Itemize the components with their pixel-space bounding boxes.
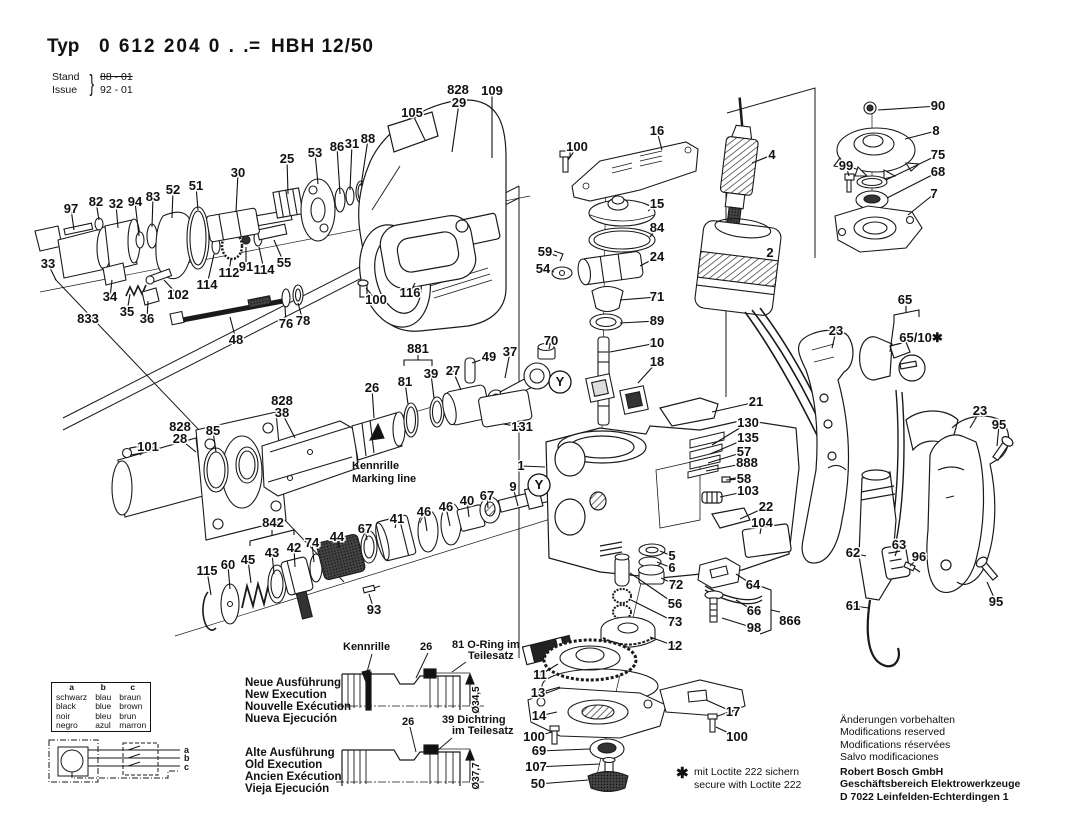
part-label-37: 37 [503,344,517,359]
execution-name: New Execution [245,689,351,701]
part-label-63: 63 [892,537,906,552]
part-label-55: 55 [277,255,291,270]
part-label-56: 56 [668,596,682,611]
ring-retainer [236,447,258,483]
kennrille-note-line: Kennrille [352,460,416,473]
part-label-65: 65 [898,292,912,307]
nut-90 [864,102,876,114]
washer-76 [282,289,290,307]
part-label-833: 833 [77,311,99,326]
part-label-60: 60 [221,557,235,572]
part-label-6: 6 [668,560,675,575]
y-marker-label-0: Y [556,374,565,389]
part-label-18: 18 [650,354,664,369]
o-ring-85 [204,448,228,492]
snap-ring-115 [203,592,216,630]
dichtring-39-mark [424,745,438,754]
stator-2 [694,215,783,317]
spindle-flange-828-28 [112,412,286,540]
wiring-terminal-c: c [184,762,189,772]
part-label-83: 83 [146,189,160,204]
part-label-66: 66 [747,603,761,618]
execution-name: Nouvelle Exécution [245,701,351,713]
part-label-135: 135 [737,430,759,445]
part-label-46: 46 [417,504,431,519]
part-label-102: 102 [167,287,189,302]
color-cell: azul [91,721,115,731]
loctite-star-icon: ✱ [676,764,689,782]
part-label-95: 95 [992,417,1006,432]
part-label-98: 98 [747,620,761,635]
execution-name: Nueva Ejecución [245,713,351,725]
pin-55 [257,224,286,240]
part-label-114: 114 [197,277,219,292]
part-label-84: 84 [650,220,665,235]
part-label-89: 89 [650,313,664,328]
pin-49 [465,358,475,383]
loctite-line: mit Loctite 222 sichern [694,766,801,779]
washer-94 [136,232,144,248]
execution-name: Ancien Exécution [245,771,342,783]
part-label-64: 64 [746,577,761,592]
screw-102 [146,269,172,284]
cap-50 [588,772,628,792]
bit-18a [586,374,614,402]
part-label-44: 44 [330,529,345,544]
spindle-assembly [35,179,366,325]
part-label-11: 11 [533,667,547,682]
part-label-23: 23 [829,323,843,338]
notice-line: Salvo modificaciones [840,751,955,763]
screw-93 [363,585,380,593]
kennrille-groove [366,672,371,710]
part-label-100: 100 [365,292,387,307]
part-label-42: 42 [287,540,301,555]
new-execution-names: Neue AusführungNew ExecutionNouvelle Exé… [245,677,351,725]
part-label-39: 39 [424,366,438,381]
color-cell: negro [52,721,92,731]
part-label-65/10✱: 65/10✱ [899,330,943,345]
sleeve-36 [142,288,159,305]
part-label-114: 114 [254,262,276,277]
leader-line-50 [538,780,588,784]
part-label-74: 74 [305,535,320,550]
part-label-8: 8 [932,123,939,138]
ring-89 [590,314,622,330]
part-label-107: 107 [525,759,547,774]
switch-box [123,743,158,775]
part-label-62: 62 [846,545,860,560]
part-label-85: 85 [206,423,220,438]
handle-shell-23-left [799,330,853,563]
part-label-43: 43 [265,545,279,560]
part-label-31: 31 [345,136,359,151]
part-label-82: 82 [89,194,103,209]
part-label-13: 13 [531,685,545,700]
grip-62 [859,470,896,600]
part-label-88: 88 [361,131,375,146]
washer-54 [552,267,572,279]
o-ring-84 [589,228,655,252]
part-label-90: 90 [931,98,945,113]
part-label-91: 91 [239,259,253,274]
main-handle [906,411,984,592]
part-label-116: 116 [400,285,421,300]
disc-15 [589,196,655,226]
part-label-45: 45 [241,552,255,567]
part-label-29: 29 [452,95,466,110]
part-label-95: 95 [989,594,1003,609]
color-row-3: negroazulmarron [52,721,151,731]
bearing-69 [590,739,624,759]
company-line: Geschäftsbereich Elektrowerkzeuge [840,778,1020,790]
part-label-81: 81 [398,374,412,389]
part-label-12: 12 [668,638,682,653]
callout-kennrille: Kennrille [343,641,390,653]
part-label-103: 103 [737,483,759,498]
part-label-842: 842 [262,515,284,530]
part-label-130: 130 [737,415,759,430]
part-label-131: 131 [511,419,533,434]
leader-lines [48,91,999,784]
parts-diagram-page: Typ 0 612 204 0 . . = HBH 12/50 Stand Is… [0,0,1068,829]
execution-name: Old Execution [245,759,342,771]
washer-5 [639,544,665,556]
screw-98 [705,591,723,622]
part-label-100: 100 [566,139,588,154]
pin-56 [615,554,629,586]
part-label-38: 38 [275,405,289,420]
part-label-35: 35 [120,304,134,319]
screw-95-top [990,435,1014,462]
part-label-33: 33 [41,256,55,271]
part-label-24: 24 [650,249,665,264]
notice-line: Änderungen vorbehalten [840,714,955,726]
part-label-14: 14 [532,708,547,723]
part-label-59: 59 [538,244,552,259]
armature-4 [716,97,763,228]
screw-95-bottom [974,555,999,582]
leader-line-8 [905,131,936,139]
fan-24 [577,251,644,286]
flange-plate-7 [835,206,922,252]
part-label-78: 78 [296,313,310,328]
cover-14 [528,688,666,738]
part-label-67: 67 [480,488,494,503]
y-marker-label-1: Y [535,477,544,492]
callout-81b: Teilesatz [468,650,514,662]
part-label-17: 17 [726,704,740,719]
part-label-36: 36 [140,311,154,326]
part-label-27: 27 [446,363,460,378]
part-label-28: 28 [173,431,187,446]
pin-107 [603,758,615,773]
part-label-109: 109 [481,83,503,98]
bearing-plate-assembly [834,102,922,252]
cone-71 [592,287,623,312]
part-label-881: 881 [407,341,429,356]
part-label-112: 112 [219,265,240,280]
part-label-73: 73 [668,614,682,629]
ring-75 [857,176,887,188]
dia-old: Ø37,7 [471,762,482,790]
part-label-72: 72 [669,577,683,592]
company-address: Robert Bosch GmbHGeschäftsbereich Elektr… [840,766,1020,803]
dia-new: Ø34,5 [471,686,482,714]
part-label-61: 61 [846,598,860,613]
part-label-70: 70 [544,333,558,348]
part-label-48: 48 [229,332,243,347]
part-label-46: 46 [439,499,453,514]
part-label-23: 23 [973,403,987,418]
wiring-terminal-labels: abc [184,745,190,772]
callout-26-old: 26 [402,716,414,728]
part-label-50: 50 [531,776,545,791]
bit-18b [620,386,648,414]
notice-line: Modifications réservées [840,739,955,751]
leader-line-86 [337,147,340,194]
leader-line-90 [878,106,938,110]
part-label-100: 100 [726,729,748,744]
part-label-67: 67 [358,521,372,536]
part-label-40: 40 [460,493,474,508]
loctite-note: mit Loctite 222 sichernsecure with Locti… [694,766,801,791]
part-label-93: 93 [367,602,381,617]
part-label-866: 866 [779,613,801,628]
callout-26-new: 26 [420,641,432,653]
part-label-68: 68 [931,164,945,179]
motor-symbol [61,750,83,772]
part-label-97: 97 [64,201,78,216]
callout-39b: im Teilesatz [452,725,514,737]
kennrille-note-line: Marking line [352,473,416,486]
part-label-71: 71 [650,289,664,304]
part-label-54: 54 [536,261,551,276]
execution-name: Vieja Ejecución [245,783,342,795]
execution-name: Alte Ausführung [245,747,342,759]
modification-notices: Änderungen vorbehaltenModifications rese… [840,714,955,763]
part-label-101: 101 [137,439,159,454]
part-label-49: 49 [482,349,496,364]
color-column-a: a [52,683,92,693]
o-ring-81 [404,403,418,437]
company-line: D 7022 Leinfelden-Echterdingen 1 [840,791,1020,803]
disc-60 [221,584,239,624]
loctite-line: secure with Loctite 222 [694,779,801,792]
part-label-22: 22 [759,499,773,514]
part-label-10: 10 [650,335,664,350]
exploded-diagram: 1058282910988318653253051528394328297333… [0,0,1068,829]
part-label-100: 100 [523,729,545,744]
screw-100-cover [560,151,570,172]
part-label-1: 1 [517,458,524,473]
part-label-41: 41 [390,511,404,526]
part-label-104: 104 [751,515,773,530]
wiring-schematic: abc [49,740,190,782]
color-code-table: abc schwarzblaubraunblackbluebrownnoirbl… [51,682,151,732]
part-label-888: 888 [736,455,758,470]
flap-21 [660,398,718,426]
plate-53 [301,179,335,241]
part-label-16: 16 [650,123,664,138]
ring-39 [430,397,444,427]
part-label-94: 94 [128,194,143,209]
part-label-86: 86 [330,139,344,154]
part-label-9: 9 [509,479,516,494]
kennrille-note: KennrilleMarking line [352,460,416,485]
part-label-105: 105 [401,105,423,120]
part-label-32: 32 [109,196,123,211]
part-label-75: 75 [931,147,945,162]
part-label-53: 53 [308,145,322,160]
part-number-labels: 1058282910988318653253051528394328297333… [41,82,1006,791]
o-ring-81-mark [424,669,436,678]
part-label-15: 15 [650,196,664,211]
part-label-30: 30 [231,165,245,180]
cover-16 [572,142,698,201]
old-execution-names: Alte AusführungOld ExecutionAncien Exécu… [245,747,342,795]
part-label-96: 96 [912,549,926,564]
part-label-99: 99 [839,158,853,173]
part-label-26: 26 [365,380,379,395]
notice-line: Modifications reserved [840,726,955,738]
cable-61 [868,600,899,666]
part-label-4: 4 [768,147,776,162]
screw-100-plate17 [708,714,717,732]
part-label-52: 52 [166,182,180,197]
color-cell: marron [115,721,150,731]
color-column-c: c [115,683,150,693]
part-label-115: 115 [197,563,218,578]
washer-78 [293,285,303,305]
leader-line-69 [539,749,590,751]
part-label-2: 2 [766,245,773,260]
part-label-25: 25 [280,151,294,166]
company-line: Robert Bosch GmbH [840,766,1020,778]
washers-73 [613,589,631,619]
part-label-69: 69 [532,743,546,758]
nut-91 [242,236,250,244]
connector-103 [702,492,722,503]
part-label-51: 51 [189,178,203,193]
execution-name: Neue Ausführung [245,677,351,689]
color-column-b: b [91,683,115,693]
handle-group [799,330,1015,666]
part-label-21: 21 [749,394,763,409]
part-label-76: 76 [279,316,293,331]
part-label-7: 7 [930,186,937,201]
part-label-34: 34 [103,289,118,304]
screw-99 [845,174,854,192]
